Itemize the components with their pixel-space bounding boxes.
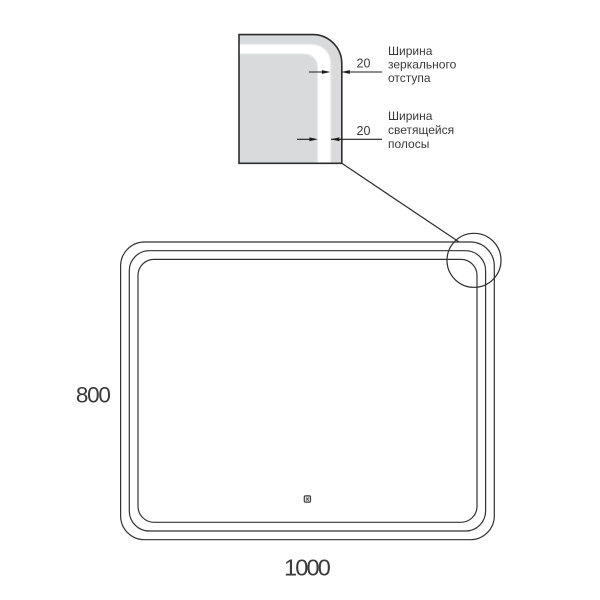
- svg-text:светящейся: светящейся: [388, 123, 454, 137]
- svg-text:Ширина: Ширина: [388, 109, 433, 123]
- svg-text:отступа: отступа: [388, 71, 431, 85]
- svg-text:800: 800: [76, 383, 110, 408]
- svg-text:Ширина: Ширина: [388, 44, 433, 58]
- svg-text:20: 20: [357, 57, 371, 71]
- svg-text:1000: 1000: [284, 555, 331, 581]
- svg-text:полосы: полосы: [388, 137, 429, 151]
- svg-text:20: 20: [357, 124, 371, 138]
- svg-text:зеркального: зеркального: [388, 58, 457, 72]
